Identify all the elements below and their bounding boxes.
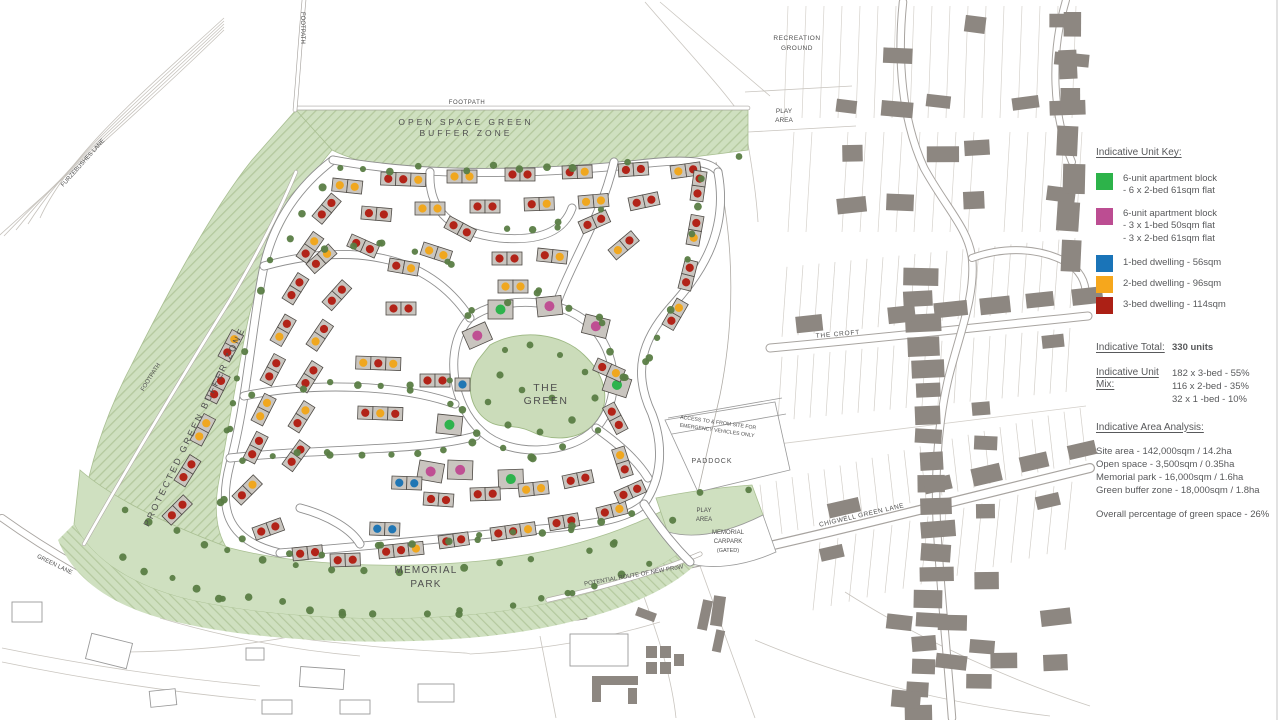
house-row — [312, 193, 341, 224]
house-row — [370, 522, 400, 536]
legend-swatch — [1096, 208, 1113, 225]
house-row — [282, 273, 309, 305]
play-area-s-label-2: AREA — [696, 517, 712, 523]
the-green-label-1: THE — [533, 382, 559, 394]
house-row — [288, 401, 315, 433]
carpark-label-2: CARPARK — [714, 539, 743, 545]
house-row — [361, 206, 392, 222]
legend-item-dwelling-2-bed: 2-bed dwelling - 96sqm — [1096, 276, 1278, 293]
house-row — [322, 280, 352, 311]
house-row — [356, 356, 401, 371]
house-row — [392, 476, 422, 490]
house-row — [470, 487, 500, 501]
house-row — [415, 202, 445, 215]
legend-item-dwelling-1-bed: 1-bed dwelling - 56sqm — [1096, 255, 1278, 272]
house-row — [388, 258, 420, 276]
total-label: Indicative Total: — [1096, 342, 1172, 355]
footpath-vertical-label: FOOTPATH — [299, 12, 305, 44]
house-row — [581, 314, 610, 338]
open-space-label-1: OPEN SPACE GREEN — [398, 117, 533, 127]
green-space-percentage: Overall percentage of green space - 26% — [1096, 509, 1278, 522]
play-area-ne-label-1: PLAY — [776, 108, 793, 115]
play-area-ne-label-2: AREA — [775, 117, 793, 124]
house-row — [470, 200, 500, 213]
house-row — [420, 374, 450, 387]
house-row — [492, 252, 522, 265]
legend-swatch — [1096, 276, 1113, 293]
indicative-unit-mix-row: Indicative Unit Mix: 182 x 3-bed - 55%11… — [1096, 367, 1278, 406]
area-analysis-title: Indicative Area Analysis: — [1096, 422, 1278, 435]
house-row — [686, 214, 704, 246]
house-row — [498, 280, 528, 293]
house-row — [678, 259, 698, 291]
green-areas — [58, 110, 763, 642]
legend-title: Indicative Unit Key: — [1096, 147, 1278, 160]
indicative-total-row: Indicative Total: 330 units — [1096, 342, 1278, 355]
house-row — [270, 314, 296, 346]
legend-item-text: 6-unit apartment block- 6 x 2-bed 61sqm … — [1123, 173, 1217, 198]
house-row — [292, 545, 323, 561]
house-row — [423, 492, 454, 507]
legend-item-text: 1-bed dwelling - 56sqm — [1123, 257, 1221, 270]
house-row — [562, 470, 594, 489]
house-row — [578, 193, 609, 209]
furzebushes-lane-label: FURZEBUSHES LANE — [60, 138, 106, 188]
house-row — [447, 170, 477, 183]
house-row — [306, 319, 334, 351]
legend-swatch — [1096, 173, 1113, 190]
house-row — [455, 378, 470, 391]
house-row — [330, 553, 360, 567]
legend-items: 6-unit apartment block- 6 x 2-bed 61sqm … — [1096, 173, 1278, 315]
house-row — [252, 518, 285, 540]
house-row — [518, 481, 549, 497]
play-area-s-label-1: PLAY — [697, 508, 712, 514]
mix-label: Indicative Unit Mix: — [1096, 367, 1172, 406]
house-row — [358, 406, 403, 421]
house-row — [536, 295, 563, 317]
paddock-label: PADDOCK — [691, 458, 732, 465]
legend-panel: Indicative Unit Key: 6-unit apartment bl… — [1096, 147, 1278, 522]
house-row — [562, 165, 592, 179]
carpark-label-3: (GATED) — [717, 548, 739, 554]
house-row — [447, 460, 473, 480]
legend-swatch — [1096, 297, 1113, 314]
memorial-park-label-1: MEMORIAL — [395, 565, 458, 576]
footpath-top-label: FOOTPATH — [449, 100, 486, 106]
house-row — [537, 248, 568, 264]
house-row — [436, 414, 463, 436]
legend-item-apartment-6-unit-pink: 6-unit apartment block- 3 x 1-bed 50sqm … — [1096, 208, 1278, 246]
house-row — [608, 231, 639, 260]
site-plan-canvas: FOOTPATH FOOTPATH FOOTPATH OPEN SPACE GR… — [0, 0, 1280, 720]
house-row — [260, 354, 286, 387]
memorial-park-label-2: PARK — [410, 579, 441, 590]
legend-swatch — [1096, 255, 1113, 272]
the-green-label-2: GREEN — [524, 395, 569, 407]
recreation-ground-label-2: GROUND — [781, 45, 813, 52]
house-row — [628, 192, 660, 211]
legend-item-text: 3-bed dwelling - 114sqm — [1123, 299, 1226, 312]
house-row — [444, 216, 477, 242]
house-row — [386, 302, 416, 315]
masterplan-map: FOOTPATH FOOTPATH FOOTPATH OPEN SPACE GR… — [0, 0, 1280, 720]
house-row — [524, 197, 554, 211]
open-space-label-2: BUFFER ZONE — [420, 128, 513, 138]
total-value: 330 units — [1172, 342, 1213, 355]
mix-lines: 182 x 3-bed - 55%116 x 2-bed - 35%32 x 1… — [1172, 367, 1250, 406]
recreation-ground-label-1: RECREATION — [773, 35, 820, 42]
area-analysis-lines: Site area - 142,000sqm / 14.2haOpen spac… — [1096, 445, 1278, 497]
house-row — [232, 475, 262, 505]
legend-item-text: 2-bed dwelling - 96sqm — [1123, 278, 1221, 291]
house-row — [618, 162, 649, 177]
house-row — [332, 178, 363, 194]
carpark-label-1: MEMORIAL — [712, 530, 745, 536]
legend-item-dwelling-3-bed: 3-bed dwelling - 114sqm — [1096, 297, 1278, 314]
legend-item-apartment-6-unit-green: 6-unit apartment block- 6 x 2-bed 61sqm … — [1096, 173, 1278, 198]
legend-item-text: 6-unit apartment block- 3 x 1-bed 50sqm … — [1123, 208, 1217, 246]
